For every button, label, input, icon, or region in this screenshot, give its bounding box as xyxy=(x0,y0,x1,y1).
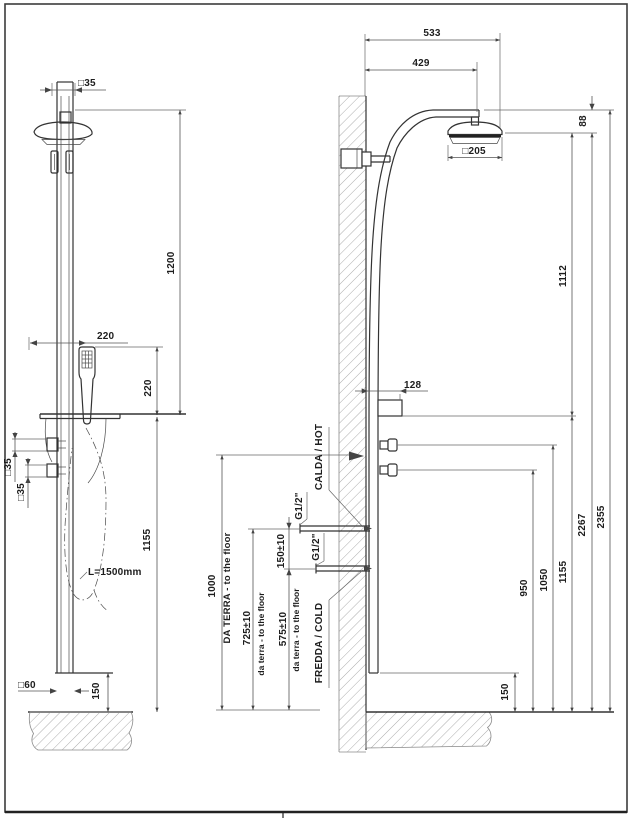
dim-label-1155-side: 1155 xyxy=(558,561,569,584)
dim-head-square: □205 xyxy=(448,137,502,161)
dim-label-pole-square: □35 xyxy=(78,78,96,89)
dim-base-height-front: 150 xyxy=(91,673,108,712)
overhead-shower-front xyxy=(34,122,92,145)
dim-label-hose-length: L=1500mm xyxy=(88,567,142,578)
dim-conn-gap: 150±10 xyxy=(276,517,292,575)
shelf-front xyxy=(40,414,186,483)
dim-label-220-height: 220 xyxy=(143,379,154,397)
dim-head-thickness: 88 xyxy=(578,96,595,127)
label-thread-cold: G1/2" xyxy=(311,533,322,560)
side-view: 533 429 □205 88 1112 xyxy=(207,28,614,752)
dim-base-height-side: 150 xyxy=(380,673,519,712)
dim-label-725: 725±10 xyxy=(242,611,253,646)
dim-shelf-height-side: 1155 xyxy=(558,416,572,712)
dim-handshower-height: 220 xyxy=(95,347,163,415)
dim-label-2267: 2267 xyxy=(577,513,588,536)
technical-drawing-page: □35 1200 220 xyxy=(0,0,632,820)
dim-label-88: 88 xyxy=(578,115,589,127)
note-da-terra-mid: da terra - to the floor xyxy=(256,592,266,676)
dim-label-150gap: 150±10 xyxy=(276,534,287,569)
pole-clips xyxy=(51,151,73,173)
thread-labels: G1/2" G1/2" xyxy=(294,492,324,565)
hand-shower-hose: L=1500mm xyxy=(65,428,142,611)
dim-knob1-square: □35 xyxy=(3,432,47,482)
dim-knob2-square: □35 xyxy=(16,458,47,508)
dim-knob-high: 1050 xyxy=(539,445,553,712)
dim-label-128: 128 xyxy=(404,380,422,391)
dim-label-533: 533 xyxy=(423,28,441,39)
label-hot-water: CALDA / HOT xyxy=(314,424,325,490)
dim-cold-conn-height: 575±10 da terra - to the floor xyxy=(278,569,316,710)
shower-column-side xyxy=(369,110,479,673)
dim-head-to-shelf-front: 1200 xyxy=(75,110,186,415)
dim-label-1155-front: 1155 xyxy=(142,529,153,552)
dim-label-1112: 1112 xyxy=(558,265,569,287)
mixer-knob-lower-side xyxy=(380,464,537,476)
dim-label-knob2-square: □35 xyxy=(16,483,27,501)
note-da-terra-low: da terra - to the floor xyxy=(291,588,301,672)
wall-section xyxy=(339,96,366,752)
dim-head-to-floor: 2267 xyxy=(577,133,592,712)
dim-arm-total: 533 xyxy=(365,28,500,128)
front-view: □35 1200 220 xyxy=(3,78,186,750)
dim-label-1050: 1050 xyxy=(539,568,550,591)
shower-column-front xyxy=(57,82,73,673)
note-da-terra-caps: DA TERRA - to the floor xyxy=(222,532,233,643)
dim-label-150-side: 150 xyxy=(500,683,511,701)
hand-shower xyxy=(79,347,95,424)
dim-label-2355: 2355 xyxy=(596,505,607,528)
dim-label-220-offset: 220 xyxy=(97,331,115,342)
dim-label-150-front: 150 xyxy=(91,682,102,700)
dim-shelf-to-floor-front: 1155 xyxy=(142,417,157,712)
dim-total-height: 2355 xyxy=(596,110,610,712)
dim-arm-reach: 429 xyxy=(365,58,477,112)
label-thread-hot: G1/2" xyxy=(294,492,305,519)
shower-column-installation-drawing: □35 1200 220 xyxy=(0,0,632,820)
label-cold-water: FREDDA / COLD xyxy=(314,603,325,684)
dim-label-575: 575±10 xyxy=(278,612,289,647)
overhead-shower-side xyxy=(448,117,502,144)
dim-label-205: □205 xyxy=(462,146,486,157)
dim-head-to-shelf-side: 1112 xyxy=(558,133,572,416)
mixer-knob-upper-side xyxy=(380,439,557,451)
dim-label-base-square: □60 xyxy=(18,680,36,691)
shelf-side xyxy=(378,400,576,416)
dim-knob-low: 950 xyxy=(519,470,533,712)
floor-section-side xyxy=(366,712,614,748)
floor-section-front xyxy=(28,712,133,750)
dim-label-429: 429 xyxy=(412,58,430,69)
dim-label-950: 950 xyxy=(519,579,530,597)
dim-label-1200: 1200 xyxy=(166,251,177,274)
dim-label-knob1-square: □35 xyxy=(3,458,14,476)
dim-label-1000: 1000 xyxy=(207,574,218,597)
